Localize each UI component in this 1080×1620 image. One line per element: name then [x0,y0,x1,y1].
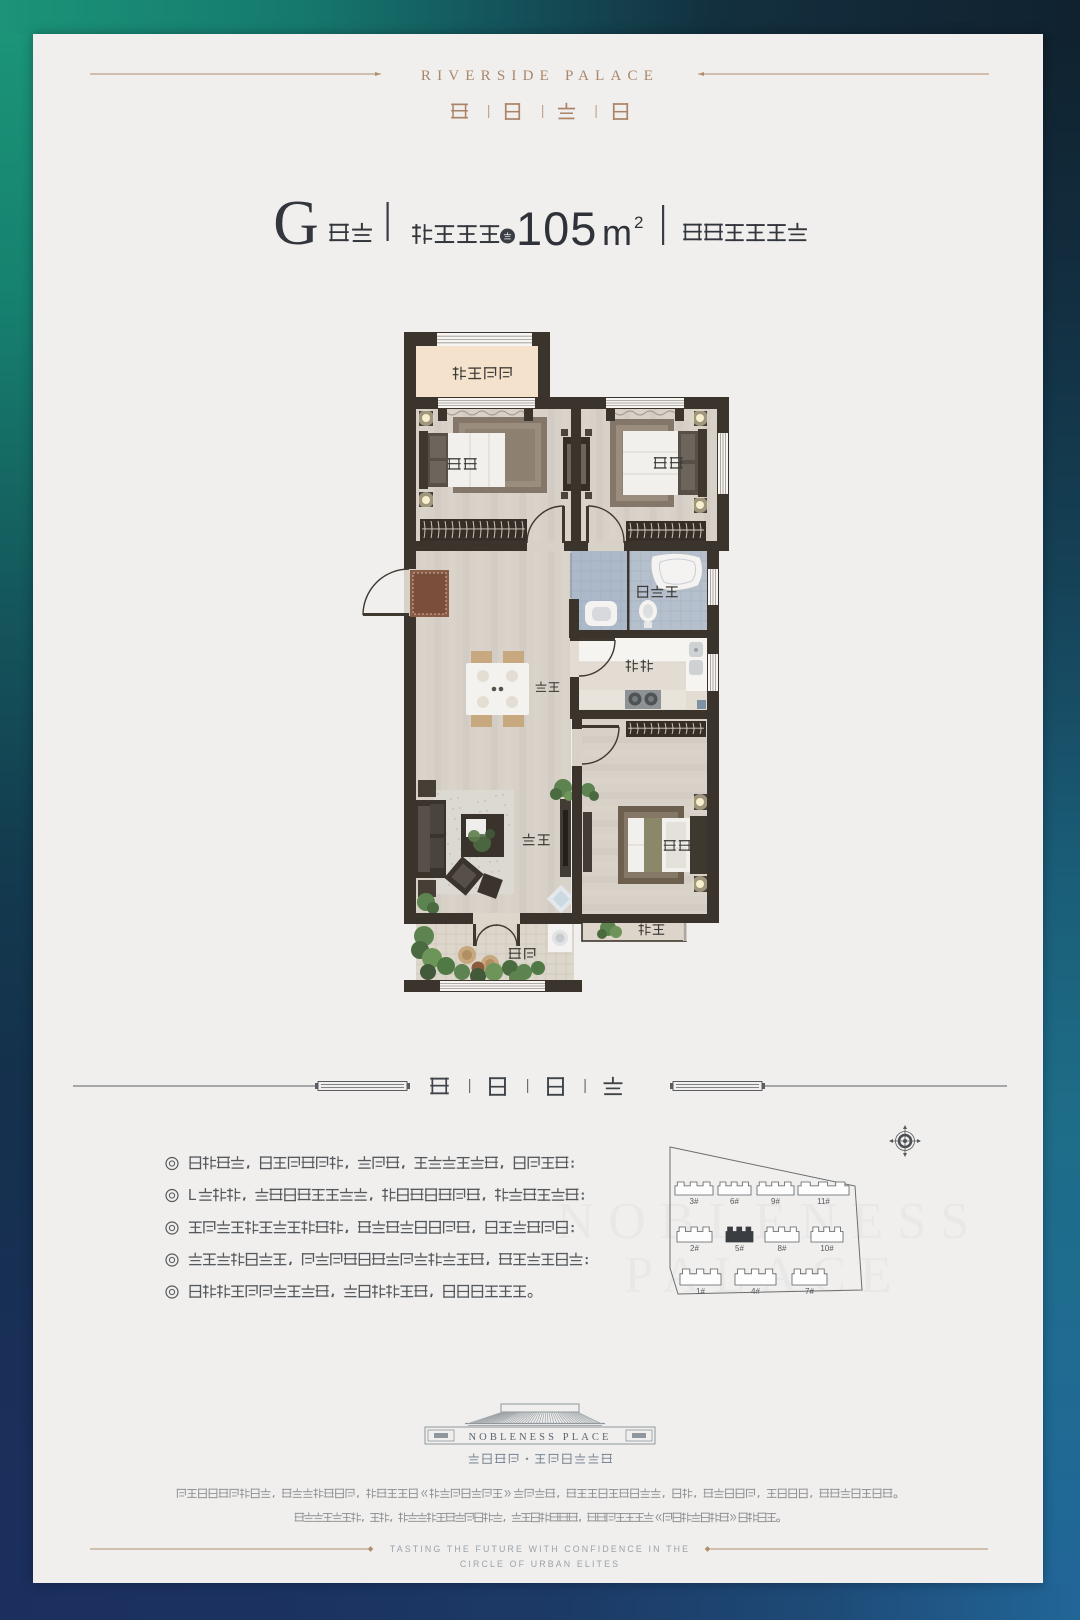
svg-text:2#: 2# [690,1244,699,1253]
svg-text:5#: 5# [735,1244,744,1253]
svg-text:m: m [602,212,632,253]
svg-text:7#: 7# [805,1287,814,1296]
svg-text:RIVERSIDE PALACE: RIVERSIDE PALACE [421,68,659,84]
svg-text:TASTING THE FUTURE WITH CONFID: TASTING THE FUTURE WITH CONFIDENCE IN TH… [390,1544,690,1554]
svg-text:G: G [273,188,319,258]
svg-text:11#: 11# [817,1197,830,1206]
svg-text:2: 2 [634,213,643,232]
svg-text:8#: 8# [778,1244,787,1253]
svg-text:NOBLENESS PLACE: NOBLENESS PLACE [468,1432,611,1443]
svg-text:1#: 1# [696,1287,705,1296]
svg-text:L: L [188,1187,197,1204]
svg-text:6#: 6# [730,1197,739,1206]
svg-text:105: 105 [516,202,597,255]
svg-text:4#: 4# [751,1287,760,1296]
svg-text:3#: 3# [690,1197,699,1206]
svg-text:9#: 9# [771,1197,780,1206]
svg-text:10#: 10# [820,1244,834,1253]
svg-text:CIRCLE OF URBAN ELITES: CIRCLE OF URBAN ELITES [460,1559,620,1569]
